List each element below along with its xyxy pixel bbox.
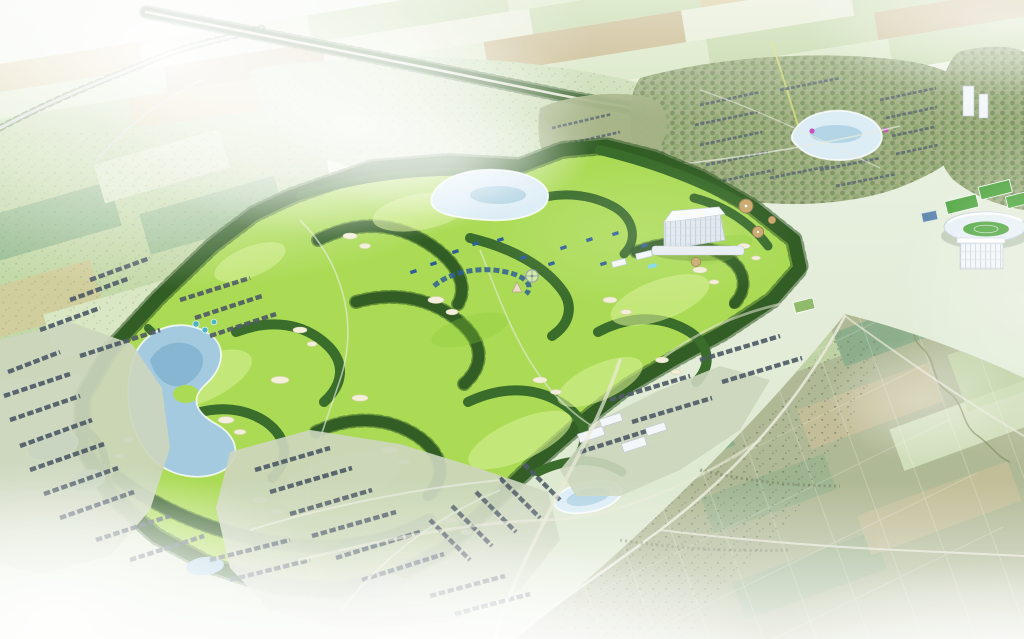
flower-tree-accent (809, 128, 814, 133)
fog-patch (825, 338, 1015, 462)
render-canvas (0, 0, 1024, 639)
fog-patch (480, 160, 800, 310)
lake-island (173, 385, 199, 403)
aerial-masterplan-render: Bird's-eye master plan rendering of a go… (0, 0, 1024, 639)
